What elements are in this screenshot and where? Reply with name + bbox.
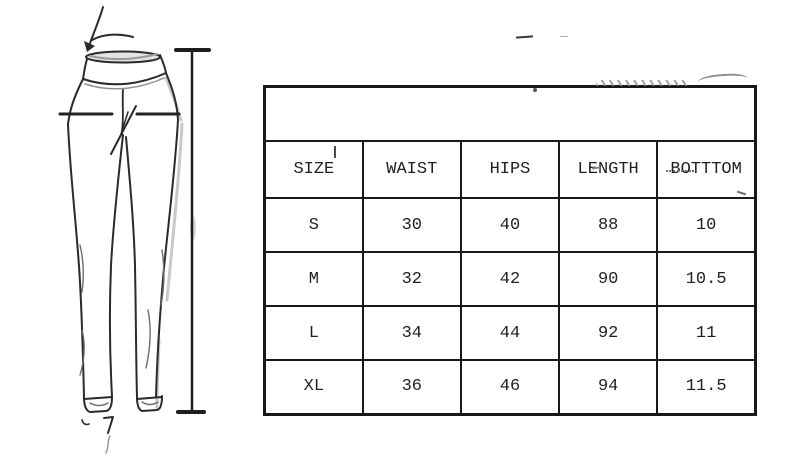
- value-cell: 10: [657, 198, 755, 252]
- value-cell: 88: [559, 198, 657, 252]
- size-cell: XL: [265, 360, 363, 414]
- value-cell: 36: [363, 360, 461, 414]
- scan-artifact: [516, 35, 533, 38]
- size-cell: M: [265, 252, 363, 306]
- value-cell: 94: [559, 360, 657, 414]
- table-row: M32429010.5: [265, 252, 756, 306]
- table-row: XL36469411.5: [265, 360, 756, 414]
- pants-diagram: [0, 0, 240, 473]
- size-cell: S: [265, 198, 363, 252]
- value-cell: 92: [559, 306, 657, 360]
- column-header-length: LENGTH: [559, 141, 657, 198]
- value-cell: 44: [461, 306, 559, 360]
- value-cell: 40: [461, 198, 559, 252]
- value-cell: 11: [657, 306, 755, 360]
- column-header-size: SIZE: [265, 141, 363, 198]
- table-header-row: SIZEWAISTHIPSLENGTHBOTTTOM: [265, 141, 756, 198]
- column-header-waist: WAIST: [363, 141, 461, 198]
- table-row: L34449211: [265, 306, 756, 360]
- waist-arrow-icon: [84, 7, 133, 52]
- value-cell: 46: [461, 360, 559, 414]
- crease-lines: [80, 245, 164, 406]
- value-cell: 10.5: [657, 252, 755, 306]
- column-header-hips: HIPS: [461, 141, 559, 198]
- value-cell: 90: [559, 252, 657, 306]
- size-chart-table: SIZEWAISTHIPSLENGTHBOTTTOM S30408810M324…: [263, 85, 757, 416]
- value-cell: 11.5: [657, 360, 755, 414]
- sketch-shading: [157, 78, 196, 408]
- pants-outline: [68, 73, 178, 412]
- value-cell: 42: [461, 252, 559, 306]
- waistband: [83, 52, 166, 89]
- length-line-icon: [176, 50, 209, 412]
- table-row: S30408810: [265, 198, 756, 252]
- bottom-mark-icon: [82, 417, 113, 453]
- size-cell: L: [265, 306, 363, 360]
- column-header-botttom: BOTTTOM: [657, 141, 755, 198]
- value-cell: 34: [363, 306, 461, 360]
- table-top-band-cell: [265, 87, 756, 142]
- size-chart-image: SIZEWAISTHIPSLENGTHBOTTTOM S30408810M324…: [0, 0, 790, 473]
- value-cell: 32: [363, 252, 461, 306]
- scan-artifact: [560, 36, 568, 37]
- table-top-band: [265, 87, 756, 142]
- value-cell: 30: [363, 198, 461, 252]
